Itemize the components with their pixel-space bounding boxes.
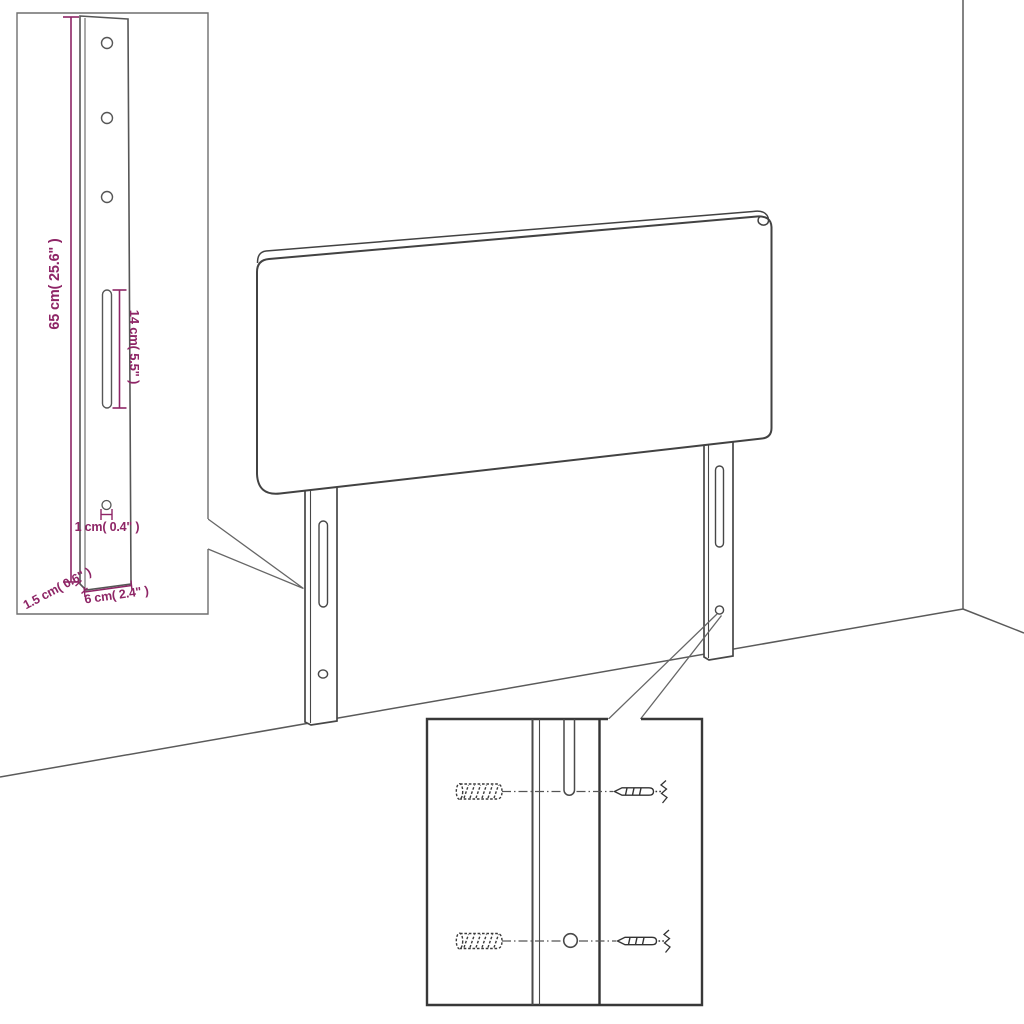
label-hole-diameter: 1 cm( 0.4" )	[75, 520, 140, 534]
left-leg-slot	[319, 521, 328, 607]
leg-detail-hole-1	[102, 38, 113, 49]
panel-front-face	[257, 216, 772, 493]
leg-detail-drawing	[80, 16, 131, 590]
leg-detail-bottom-hole	[102, 501, 111, 510]
label-slot-length: 14 cm( 5.5" )	[127, 310, 142, 384]
callout-to-left-leg	[208, 519, 304, 589]
floor-line-right	[963, 609, 1024, 633]
leg-detail-hole-2	[102, 113, 113, 124]
assembly-diagram: 65 cm( 25.6" ) 14 cm( 5.5" ) 1 cm( 0.4" …	[0, 0, 1024, 1024]
assembly-diagram-page: 65 cm( 25.6" ) 14 cm( 5.5" ) 1 cm( 0.4" …	[0, 0, 1024, 1024]
headboard-panel	[257, 211, 772, 494]
leg-detail-slot	[103, 290, 112, 408]
leg-detail-hole-3	[102, 192, 113, 203]
headboard-right-leg	[704, 426, 733, 660]
headboard-left-leg	[305, 476, 337, 725]
right-leg-slot	[716, 466, 724, 547]
callout-lines	[208, 519, 722, 719]
label-leg-height: 65 cm( 25.6" )	[47, 238, 63, 329]
left-leg-hole	[318, 670, 327, 678]
right-leg-hole	[715, 606, 723, 614]
hardware-detail-inset	[427, 719, 702, 1005]
leg-dimension-inset: 65 cm( 25.6" ) 14 cm( 5.5" ) 1 cm( 0.4" …	[17, 13, 208, 614]
